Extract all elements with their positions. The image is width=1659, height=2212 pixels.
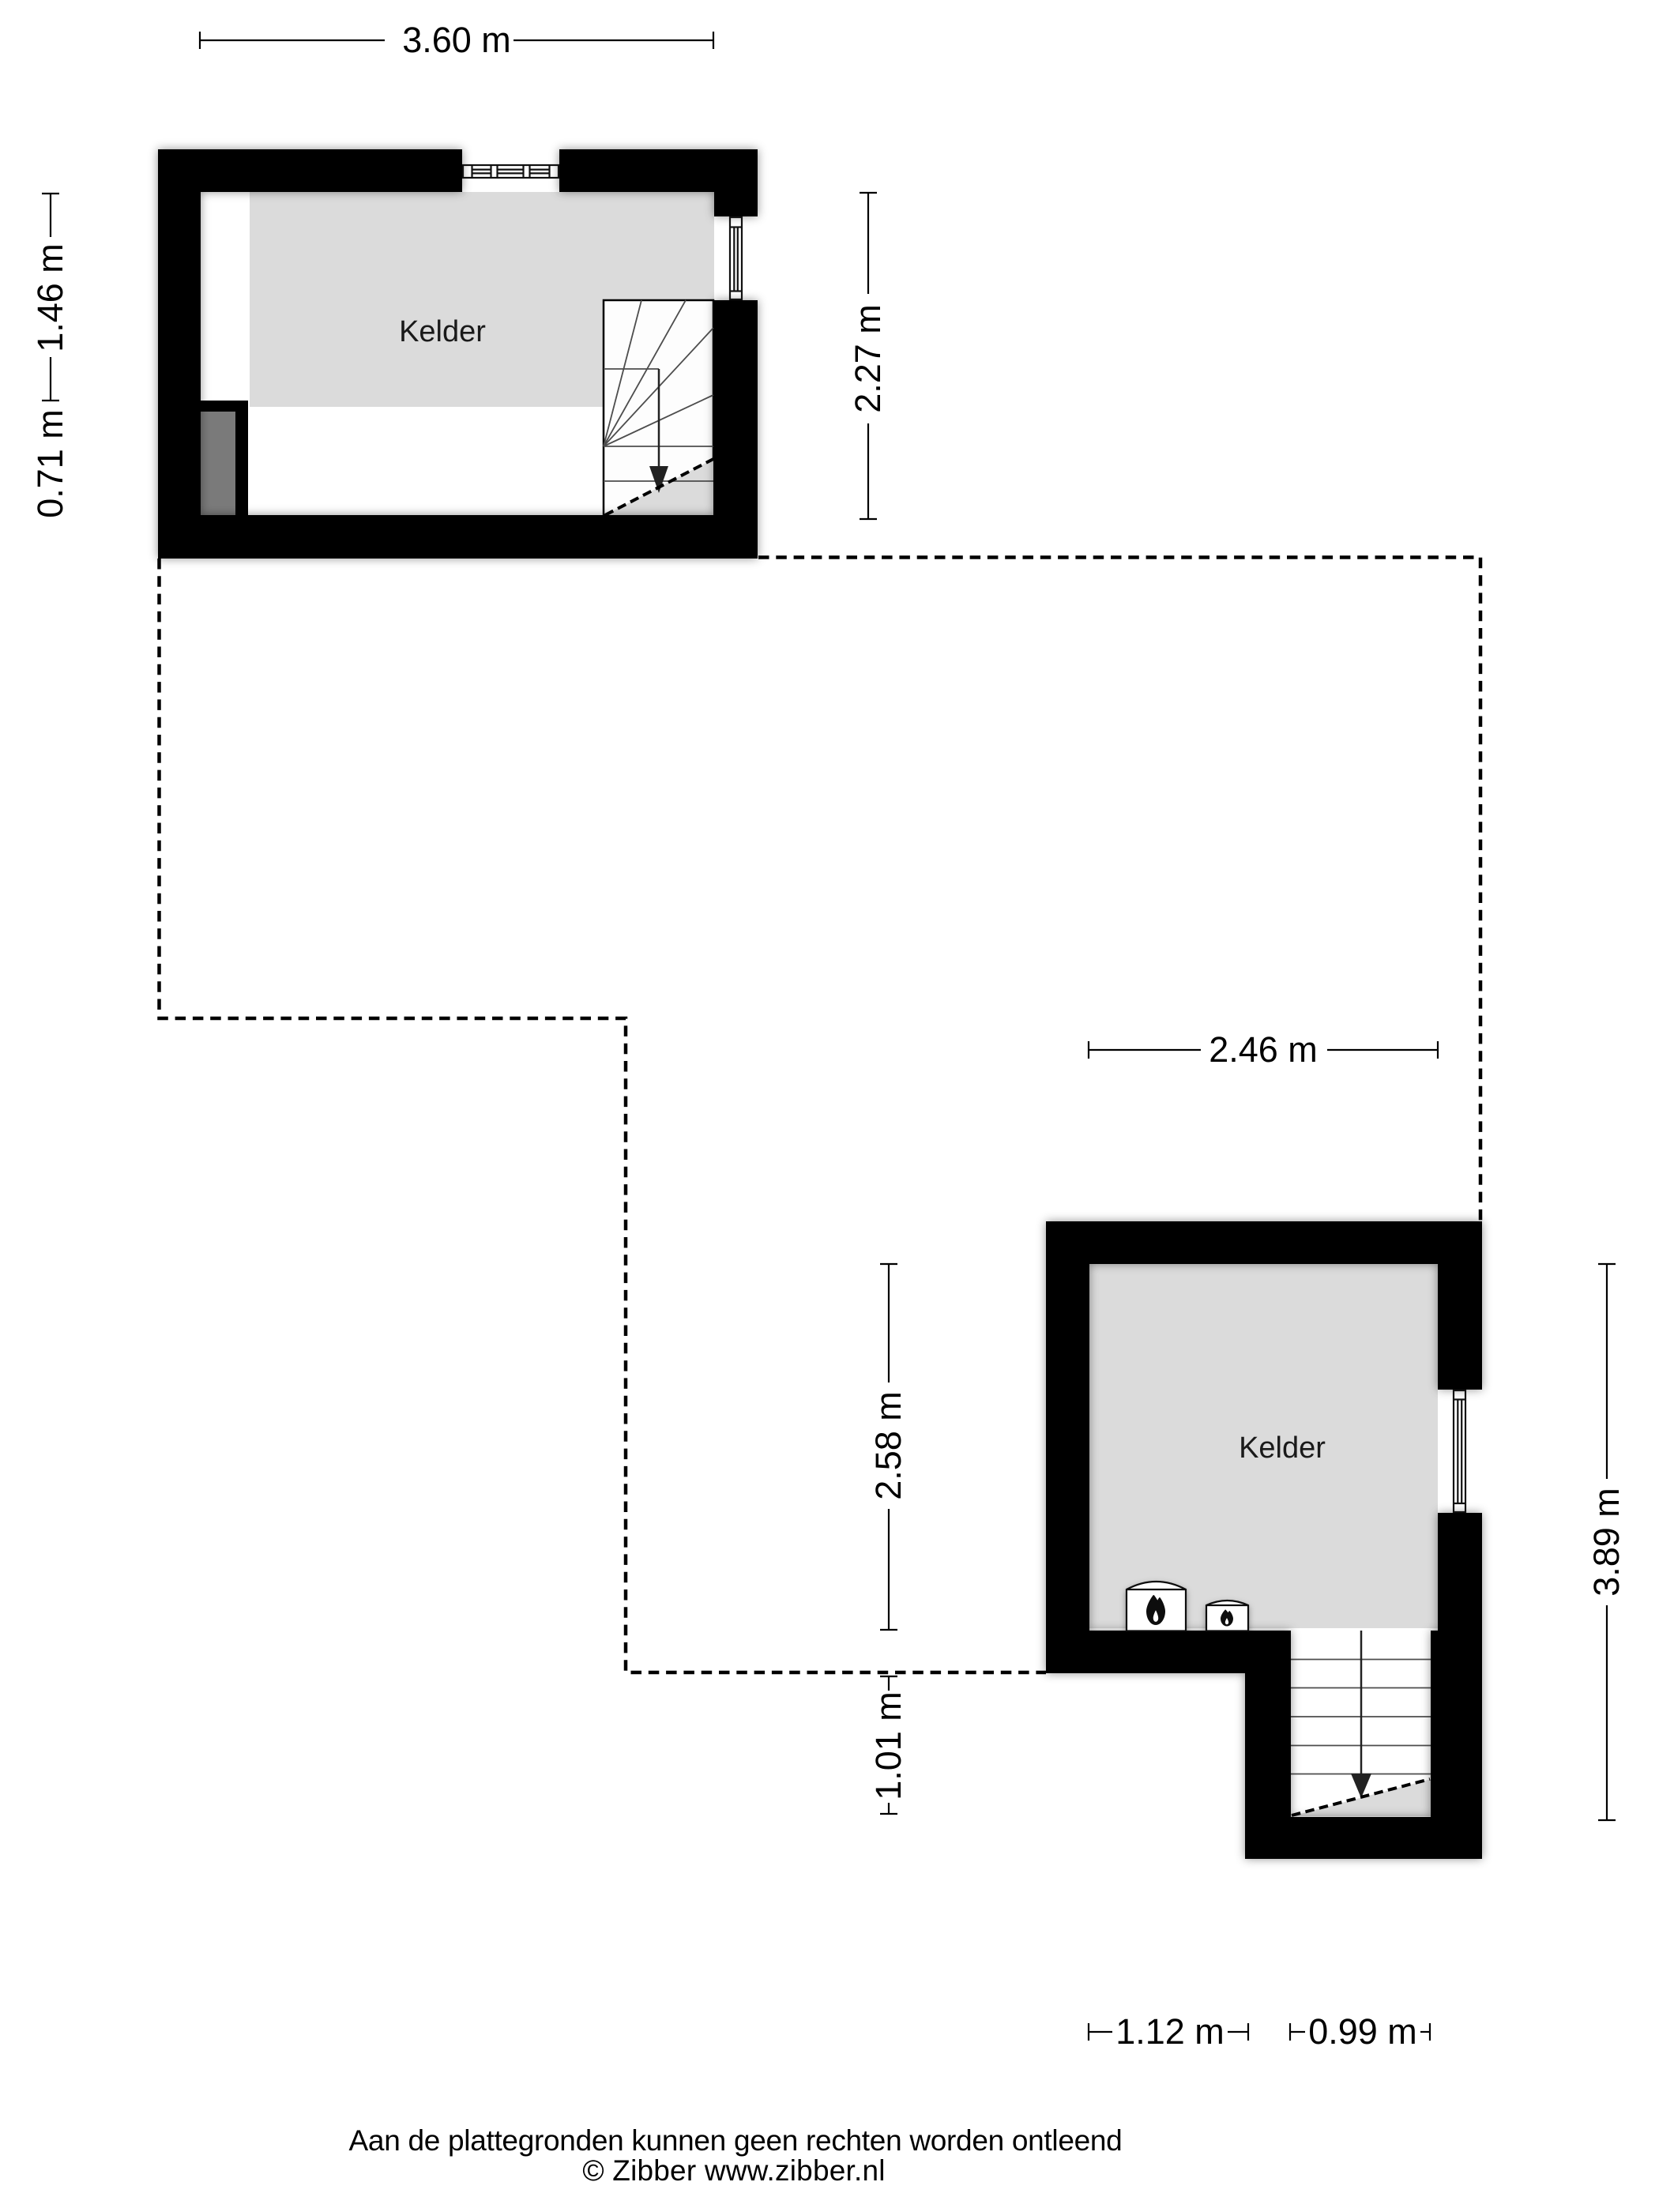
svg-text:0.71 m: 0.71 m [30, 409, 70, 518]
svg-text:3.89 m: 3.89 m [1586, 1488, 1627, 1597]
svg-text:2.46 m: 2.46 m [1209, 1029, 1318, 1070]
svg-text:2.58 m: 2.58 m [868, 1391, 908, 1500]
svg-text:1.12 m: 1.12 m [1115, 2011, 1224, 2052]
svg-text:2.27 m: 2.27 m [848, 304, 888, 413]
svg-text:0.99 m: 0.99 m [1308, 2011, 1417, 2052]
svg-text:3.60 m: 3.60 m [402, 20, 511, 60]
svg-text:1.01 m: 1.01 m [868, 1691, 908, 1800]
svg-text:Aan de plattegronden kunnen ge: Aan de plattegronden kunnen geen rechten… [349, 2124, 1123, 2157]
svg-text:1.46 m: 1.46 m [30, 243, 70, 352]
svg-text:Kelder: Kelder [399, 315, 486, 348]
svg-text:© Zibber www.zibber.nl: © Zibber www.zibber.nl [582, 2154, 885, 2187]
svg-text:Kelder: Kelder [1239, 1431, 1326, 1465]
